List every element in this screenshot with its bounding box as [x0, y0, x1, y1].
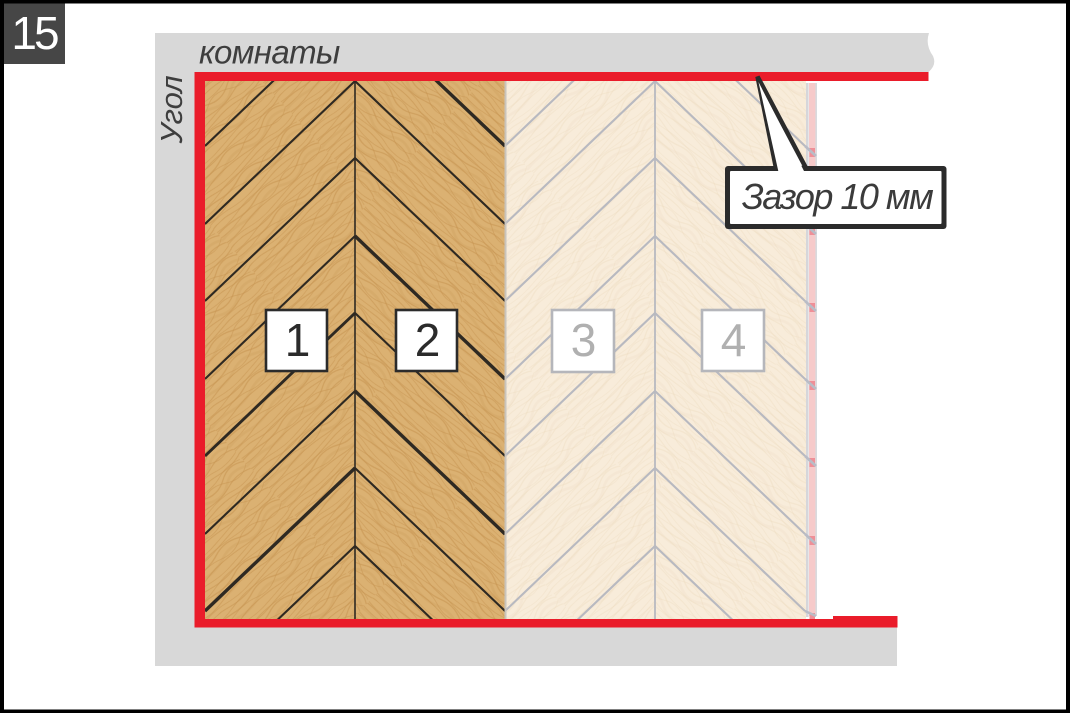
svg-text:2: 2 — [415, 314, 441, 366]
svg-text:1: 1 — [285, 314, 311, 366]
svg-text:15: 15 — [11, 7, 58, 59]
svg-text:Угол: Угол — [154, 75, 189, 144]
svg-text:Зазор 10 мм: Зазор 10 мм — [742, 176, 933, 217]
svg-text:4: 4 — [721, 314, 747, 366]
svg-text:комнаты: комнаты — [199, 34, 340, 71]
svg-text:3: 3 — [571, 314, 597, 366]
